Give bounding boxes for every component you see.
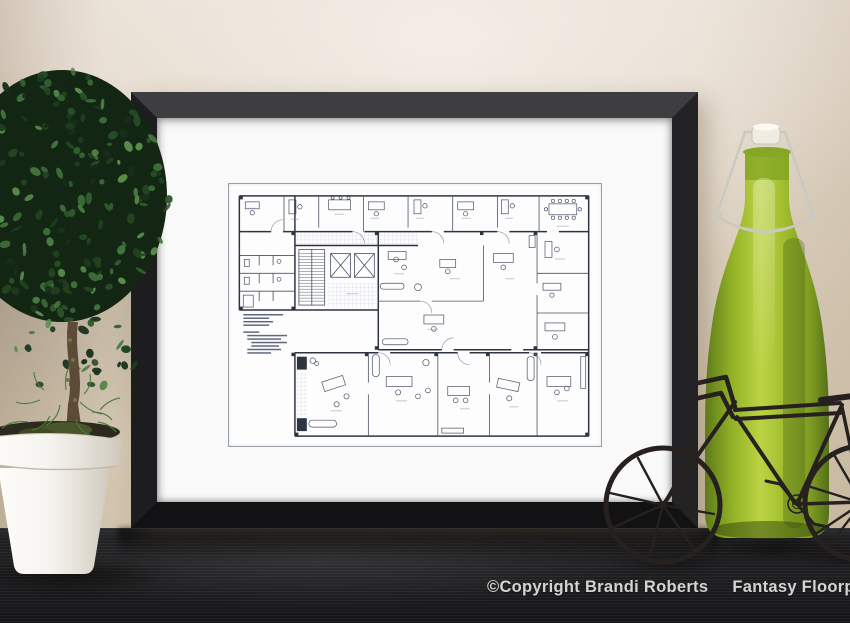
topiary-trunk xyxy=(66,322,82,432)
hatched-corridor xyxy=(295,233,418,417)
ceramic-pot-body xyxy=(0,468,110,574)
watermark: ©Copyright Brandi RobertsFantasy Floorpl… xyxy=(487,578,850,597)
potted-topiary xyxy=(0,60,190,590)
bottle-lip xyxy=(743,147,791,157)
elevator-shafts xyxy=(331,253,375,277)
stairwell xyxy=(299,250,325,306)
floor-plan-drawing xyxy=(229,184,601,446)
ceramic-pot-rim xyxy=(0,433,122,469)
product-photo-scene: ©Copyright Brandi RobertsFantasy Floorpl… xyxy=(0,0,850,623)
floor-plan-print xyxy=(228,183,602,447)
title-notes-block xyxy=(243,314,287,354)
brand-text: Fantasy Floorplans xyxy=(732,578,850,596)
wire-bicycle-sculpture xyxy=(590,355,850,580)
copyright-text: ©Copyright Brandi Roberts xyxy=(487,578,708,596)
bike-seat xyxy=(821,396,850,400)
